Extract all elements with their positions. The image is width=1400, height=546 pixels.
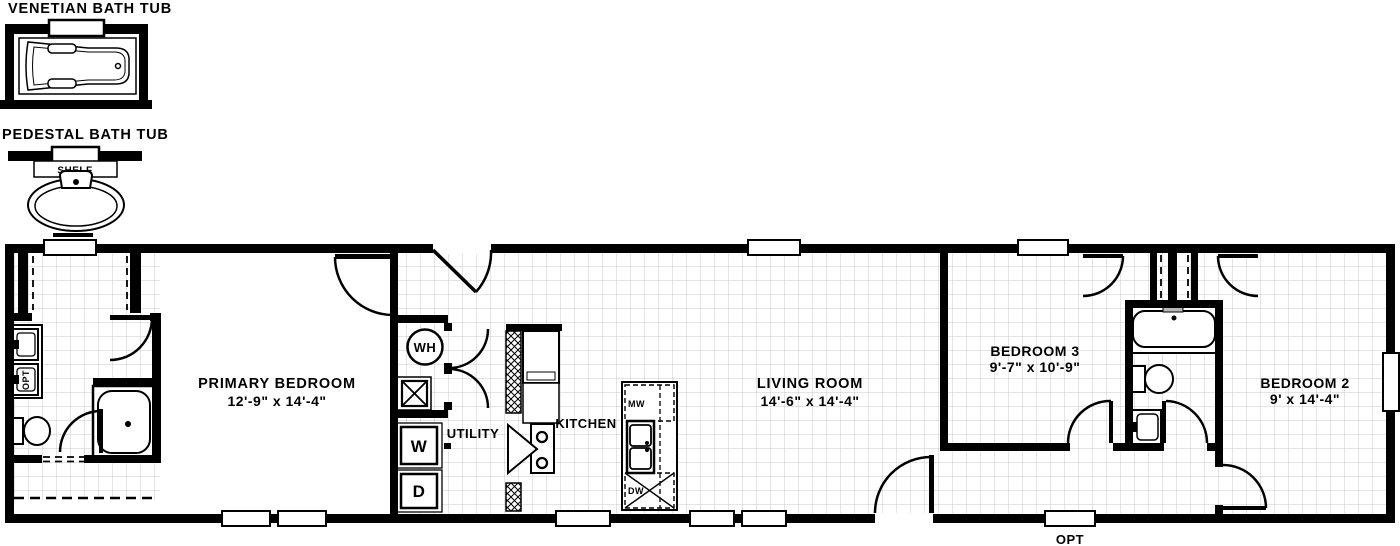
window — [222, 511, 270, 526]
dishwasher-label: DW — [628, 486, 644, 496]
microwave-label: MW — [628, 399, 645, 409]
primary-bedroom-dims: 12'-9" x 14'-4" — [227, 393, 326, 409]
pillow — [48, 79, 76, 88]
window — [748, 240, 800, 255]
window — [278, 511, 326, 526]
kitchen-counter — [523, 383, 559, 423]
faucet — [645, 441, 649, 445]
dryer: D — [396, 470, 442, 512]
utility-label: UTILITY — [447, 426, 500, 441]
living-room-label: LIVING ROOM — [757, 376, 863, 392]
washer-label: W — [411, 437, 428, 456]
range — [508, 424, 554, 473]
pedestal-tub-title: PEDESTAL BATH TUB — [2, 127, 169, 143]
water-heater: WH — [408, 330, 443, 365]
toilet — [1132, 365, 1173, 393]
water-heater-label: WH — [414, 340, 437, 355]
window — [690, 511, 734, 526]
window — [1018, 240, 1068, 255]
pillow — [48, 44, 76, 53]
floor-plan: OPT WH — [5, 240, 1399, 546]
dryer-label: D — [413, 482, 426, 501]
optional-area-floor — [14, 500, 160, 514]
faucet — [1172, 316, 1177, 321]
bedroom-2-dims: 9' x 14'-4" — [1270, 391, 1340, 407]
kitchen-cabinet-run — [506, 483, 521, 511]
window — [1383, 353, 1399, 411]
kitchen-sink — [627, 421, 654, 473]
optional-window-label: OPT — [1056, 532, 1084, 546]
optional-window — [1045, 511, 1095, 526]
kitchen-cabinet-run — [506, 331, 521, 413]
burner — [537, 458, 547, 468]
bedroom-3-dims: 9'-7" x 10'-9" — [990, 359, 1081, 375]
kitchen-label: KITCHEN — [555, 416, 616, 431]
back-door-opening — [433, 243, 491, 254]
faucet — [645, 448, 649, 452]
window — [44, 240, 96, 255]
window — [742, 511, 786, 526]
bedroom-3-label: BEDROOM 3 — [990, 343, 1079, 359]
furnace — [397, 377, 431, 410]
kitchen-island: MW DW — [622, 382, 677, 510]
bedroom-2-label: BEDROOM 2 — [1260, 375, 1349, 391]
front-door-opening — [875, 513, 933, 524]
bathtub — [1128, 304, 1220, 353]
tub-outline — [26, 42, 129, 90]
venetian-tub-title: VENETIAN BATH TUB — [8, 1, 172, 17]
bathroom-sink — [11, 329, 38, 360]
shower-drain — [125, 421, 131, 427]
living-room-dims: 14'-6" x 14'-4" — [760, 393, 859, 409]
optional-bathroom-sink: OPT — [11, 364, 38, 395]
drain — [73, 179, 79, 185]
primary-bedroom-label: PRIMARY BEDROOM — [198, 376, 356, 392]
refrigerator — [523, 331, 559, 383]
window — [49, 20, 104, 36]
window — [556, 511, 610, 526]
burner — [537, 432, 547, 442]
floor-plan-canvas: VENETIAN BATH TUB PEDESTAL BATH TUB SHEL… — [0, 0, 1400, 546]
toilet — [10, 417, 50, 445]
optional-sink-label: OPT — [21, 370, 31, 390]
